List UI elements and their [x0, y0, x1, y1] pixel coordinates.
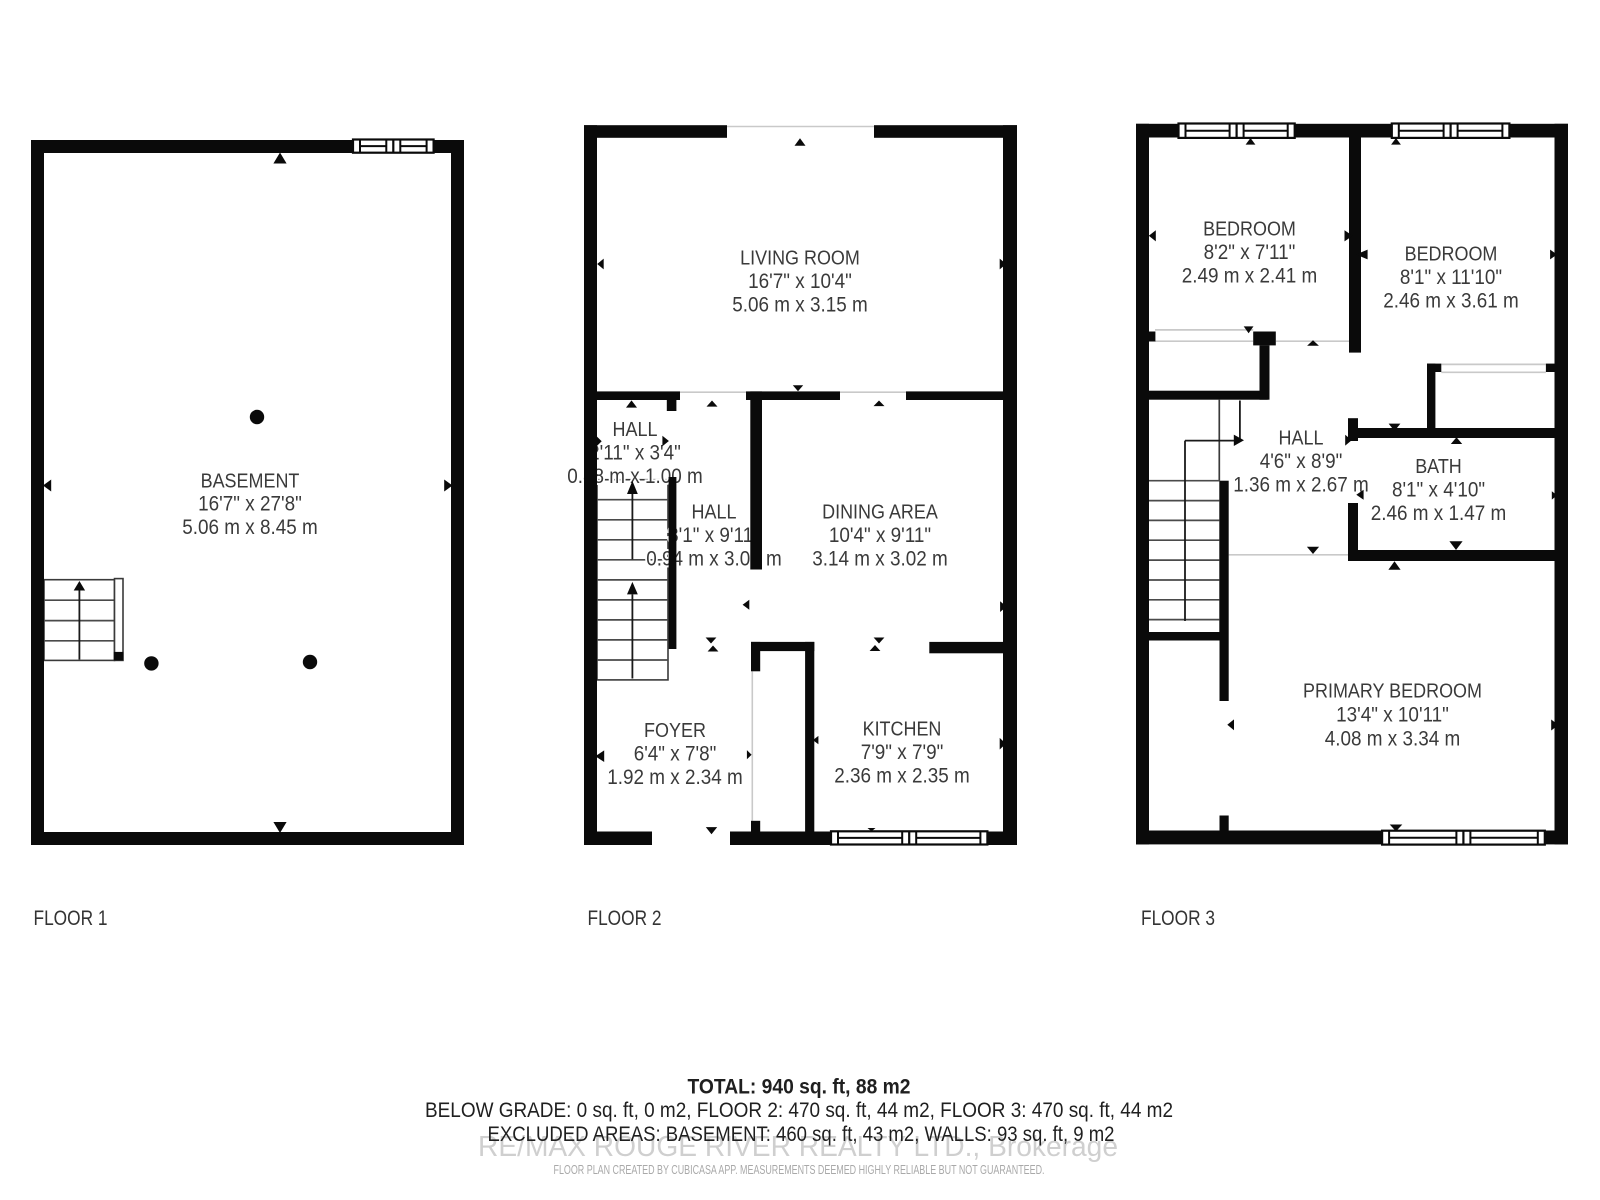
svg-text:6'4" x 7'8": 6'4" x 7'8": [634, 743, 717, 766]
svg-text:8'1" x 4'10": 8'1" x 4'10": [1392, 479, 1485, 502]
svg-text:1.36 m x 2.67 m: 1.36 m x 2.67 m: [1233, 474, 1369, 497]
svg-text:16'7" x 27'8": 16'7" x 27'8": [198, 493, 302, 516]
svg-text:1.92 m x 2.34 m: 1.92 m x 2.34 m: [607, 766, 743, 789]
svg-text:FOYER: FOYER: [644, 720, 706, 742]
svg-text:FLOOR PLAN CREATED BY CUBICASA: FLOOR PLAN CREATED BY CUBICASA APP. MEAS…: [554, 1163, 1045, 1177]
svg-text:3.14 m x 3.02 m: 3.14 m x 3.02 m: [812, 548, 948, 571]
svg-text:7'9" x 7'9": 7'9" x 7'9": [861, 741, 944, 764]
svg-text:8'1" x 11'10": 8'1" x 11'10": [1400, 266, 1502, 289]
svg-text:3'1" x 9'11": 3'1" x 9'11": [668, 524, 760, 547]
svg-text:BEDROOM: BEDROOM: [1203, 219, 1296, 241]
svg-text:FLOOR 2: FLOOR 2: [588, 906, 662, 930]
svg-text:5.06 m x 8.45 m: 5.06 m x 8.45 m: [182, 516, 318, 539]
svg-text:BASEMENT: BASEMENT: [201, 470, 300, 492]
svg-text:FLOOR 1: FLOOR 1: [34, 906, 108, 930]
svg-text:PRIMARY BEDROOM: PRIMARY BEDROOM: [1303, 681, 1482, 703]
svg-text:10'4" x 9'11": 10'4" x 9'11": [829, 524, 931, 547]
svg-text:8'2" x 7'11": 8'2" x 7'11": [1204, 241, 1296, 264]
svg-text:FLOOR 3: FLOOR 3: [1141, 906, 1215, 930]
svg-text:EXCLUDED AREAS: BASEMENT: 460: EXCLUDED AREAS: BASEMENT: 460 sq. ft, 43…: [488, 1123, 1115, 1146]
svg-text:BELOW GRADE: 0 sq. ft, 0 m2, F: BELOW GRADE: 0 sq. ft, 0 m2, FLOOR 2: 47…: [425, 1099, 1173, 1122]
svg-text:HALL: HALL: [1279, 428, 1324, 450]
svg-text:2.46 m x 3.61 m: 2.46 m x 3.61 m: [1383, 290, 1519, 313]
svg-text:KITCHEN: KITCHEN: [863, 719, 942, 741]
svg-text:4.08 m x 3.34 m: 4.08 m x 3.34 m: [1325, 728, 1461, 751]
svg-text:BEDROOM: BEDROOM: [1405, 244, 1498, 266]
svg-text:5.06 m x 3.15 m: 5.06 m x 3.15 m: [732, 294, 868, 317]
svg-text:2.36 m x 2.35 m: 2.36 m x 2.35 m: [834, 765, 970, 788]
svg-text:DINING AREA: DINING AREA: [822, 502, 938, 524]
svg-text:2'11" x 3'4": 2'11" x 3'4": [589, 442, 681, 465]
svg-text:HALL: HALL: [613, 419, 658, 441]
svg-text:13'4" x 10'11": 13'4" x 10'11": [1336, 704, 1449, 727]
svg-text:2.49 m x 2.41 m: 2.49 m x 2.41 m: [1182, 265, 1318, 288]
svg-text:HALL: HALL: [692, 502, 737, 524]
svg-text:LIVING ROOM: LIVING ROOM: [740, 248, 860, 270]
svg-text:BATH: BATH: [1415, 456, 1462, 478]
svg-text:TOTAL: 940 sq. ft, 88 m2: TOTAL: 940 sq. ft, 88 m2: [688, 1076, 911, 1099]
svg-text:2.46 m x 1.47 m: 2.46 m x 1.47 m: [1371, 502, 1507, 525]
svg-text:4'6" x 8'9": 4'6" x 8'9": [1260, 450, 1343, 473]
svg-text:16'7" x 10'4": 16'7" x 10'4": [748, 270, 852, 293]
